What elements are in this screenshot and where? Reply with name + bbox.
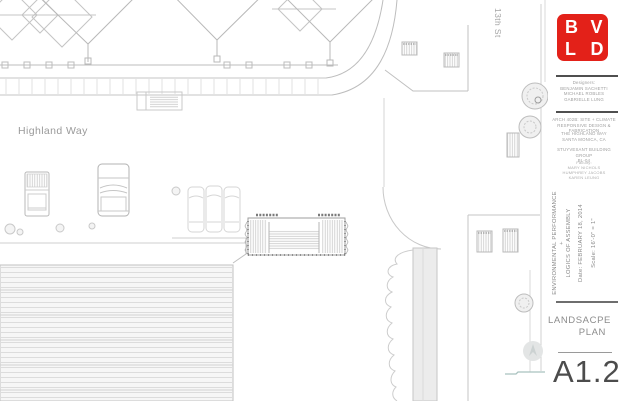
project-title-line: ENVIRONMENTAL PERFORMANCE <box>552 191 559 294</box>
roof-diamonds <box>0 0 390 66</box>
hedge-and-wall <box>385 248 437 401</box>
divider <box>556 301 618 303</box>
sheet-scale: Scale: 16'-0" = 1" <box>591 218 598 268</box>
divider <box>556 111 618 113</box>
logo-letter: B <box>565 18 583 40</box>
site-plan-drawing: Highland Way <box>0 0 548 401</box>
logo-letter: L <box>565 40 583 62</box>
street-trees <box>515 83 548 312</box>
firm-logo: B V L D <box>557 14 608 61</box>
parked-cars <box>188 186 240 232</box>
faculty-line: KAREN LEUNG <box>552 176 616 181</box>
street-label-13th-st: 13th St <box>493 8 503 38</box>
street-13th <box>505 0 545 374</box>
credits-block: Designers: BENJAMIN SACHETTI MICHAEL ROB… <box>552 80 616 102</box>
street-label-highland-way: Highland Way <box>18 125 88 137</box>
stage-structure <box>245 215 348 255</box>
logo-letter: D <box>591 40 609 62</box>
divider <box>556 75 618 77</box>
north-arrow-icon <box>523 341 543 361</box>
plaza-cars <box>402 42 459 67</box>
location-line: SANTA MONICA, CA <box>552 137 616 143</box>
project-title-line: LOGICS OF ASSEMBLY <box>566 208 573 277</box>
sheet-date: Date: FEBRUARY 18, 2014 <box>578 204 585 282</box>
truck <box>98 164 129 216</box>
truck <box>25 172 49 216</box>
building-roof-stripes <box>0 265 233 401</box>
building-corner <box>233 238 246 263</box>
divider <box>558 352 612 353</box>
sheet-name-line: LANDSACPE <box>548 315 606 327</box>
sheet-name-line: PLAN <box>548 327 606 339</box>
sheet-number: A1.2 <box>553 354 620 390</box>
credits-line: GABRIELLE LUNG <box>552 97 616 103</box>
faculty-block: Faculty: MARY NICHOLS HUMPHREY JACOBS KA… <box>552 161 616 181</box>
course-line: ARCH 402B: SITE + CLIMATE <box>552 117 616 123</box>
logo-letter: V <box>591 18 609 40</box>
firm-line: STUYVESANT BUILDING GROUP <box>552 147 616 158</box>
planter-line <box>0 62 338 68</box>
project-title-rotated: ENVIRONMENTAL PERFORMANCE + LOGICS OF AS… <box>552 198 616 288</box>
project-title-line: + <box>559 241 566 245</box>
location-block: THE HIGHLAND WAY SANTA MONICA, CA <box>552 131 616 142</box>
drawing-sheet: Highland Way <box>0 0 620 401</box>
location-line: THE HIGHLAND WAY <box>552 131 616 137</box>
sheet-name: LANDSACPE PLAN <box>548 315 612 338</box>
sidewalk-band <box>0 0 397 95</box>
